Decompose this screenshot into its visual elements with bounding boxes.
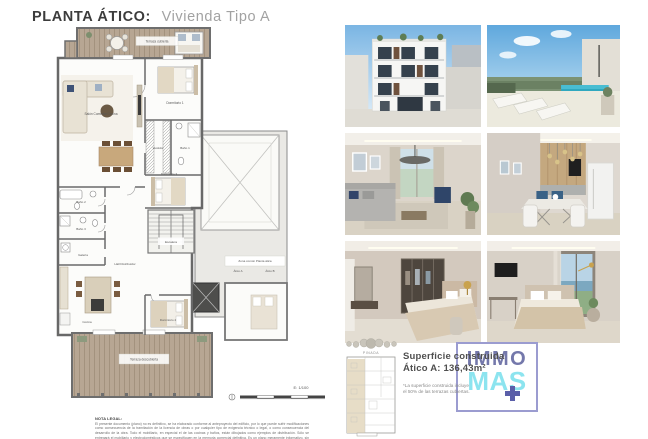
photo-living-room <box>345 133 481 235</box>
brochure-page: PLANTA ÁTICO: Vivienda Tipo A <box>0 0 648 439</box>
legal-note-heading: NOTA LEGAL: <box>95 416 309 421</box>
photo-master-bedroom <box>345 241 481 343</box>
photo-grid <box>345 25 620 343</box>
room-label-galeria: Galería <box>78 253 88 257</box>
floor-plan-drawing: Terraza cubierta Dormitorio 1 Salón Come… <box>25 25 335 410</box>
room-label-bano3: Baño 3 <box>76 227 86 231</box>
room-label-dormitorio3: Dormitorio 3 <box>161 172 178 176</box>
room-label-cocina: Cocina <box>82 320 92 324</box>
page-title-main: PLANTA ÁTICO: <box>32 9 151 25</box>
key-plan-street-label: PINADA <box>363 351 379 355</box>
room-label-hall: Hall Distribuidor <box>114 262 135 266</box>
photo-bedroom-view <box>487 241 620 343</box>
page-title: PLANTA ÁTICO: Vivienda Tipo A <box>32 9 270 25</box>
room-label-zona-comun: Zona común Planta ática <box>238 259 272 263</box>
room-label-vestidor: Vestidor <box>153 146 164 150</box>
room-label-terraza-descubierta: Terraza descubierta <box>130 358 158 362</box>
plan-scale-label: E: 1/100 <box>294 385 310 390</box>
room-label-atico-a: Ático A <box>234 269 243 273</box>
rooftop-illustration <box>487 25 620 127</box>
floor-plan: Terraza cubierta Dormitorio 1 Salón Come… <box>25 25 335 410</box>
photo-building-facade <box>345 25 481 127</box>
room-label-escalera: Escalera <box>165 240 177 244</box>
room-label-bano1: Baño 1 <box>180 146 190 150</box>
page-title-sub: Vivienda Tipo A <box>162 9 271 25</box>
photo-rooftop-pool <box>487 25 620 127</box>
surface-summary-line1: Superficie construida <box>403 351 513 363</box>
room-label-atico-b: Ático B <box>265 269 274 273</box>
dining-kitchen-illustration <box>487 133 620 235</box>
legal-note: NOTA LEGAL: El presente documento (plano… <box>95 416 309 439</box>
bedroom-view-illustration <box>487 241 620 343</box>
building-facade-illustration <box>345 25 481 127</box>
surface-summary-footnote: *La superficie construida incluye el 50%… <box>403 383 471 396</box>
surface-summary: Superficie construida Ático A: 136,43m² … <box>403 351 513 396</box>
photo-dining-kitchen <box>487 133 620 235</box>
living-room-illustration <box>345 133 481 235</box>
key-plan: PINADA <box>343 337 399 437</box>
room-label-bano2: Baño 2 <box>76 200 86 204</box>
surface-summary-line2: Ático A: 136,43m² <box>403 363 513 375</box>
room-label-dormitorio1: Dormitorio 1 <box>166 101 184 105</box>
room-label-salon: Salón Comedor Cocina <box>85 112 118 116</box>
room-label-terraza-cubierta: Terraza cubierta <box>146 40 169 44</box>
key-plan-drawing: PINADA <box>343 337 399 437</box>
room-label-dormitorio2: Dormitorio 2 <box>160 318 177 322</box>
legal-note-body: El presente documento (plano) no es defi… <box>95 422 309 439</box>
master-bedroom-illustration <box>345 241 481 343</box>
